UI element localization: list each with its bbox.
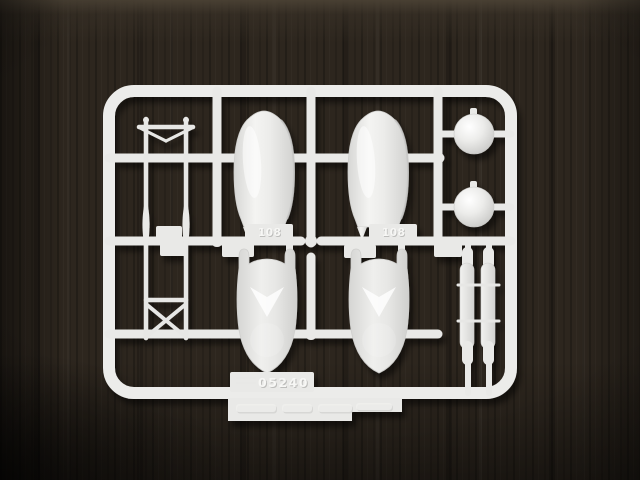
float-upper-halves: [234, 111, 408, 240]
sprue: 108 108 108 108 05240 05240: [109, 91, 511, 421]
small-strut-parts: [458, 247, 499, 365]
kit-title-tab: [228, 398, 402, 421]
dome-part: [454, 108, 494, 154]
dome-parts: [454, 108, 494, 227]
sprue-illustration: 108 108 108 108 05240 05240: [0, 0, 640, 480]
photo-model-kit-sprue: 108 108 108 108 05240 05240: [0, 0, 640, 480]
float-lower-half: [237, 241, 297, 373]
part-tag-number: 108: [382, 227, 405, 239]
mold-number: 05240: [258, 375, 309, 390]
float-lower-halves: [237, 241, 409, 373]
mold-number-tab: 05240 05240: [230, 372, 314, 392]
part-tag-number: 108: [258, 227, 281, 239]
float-upper-half: [234, 111, 294, 240]
